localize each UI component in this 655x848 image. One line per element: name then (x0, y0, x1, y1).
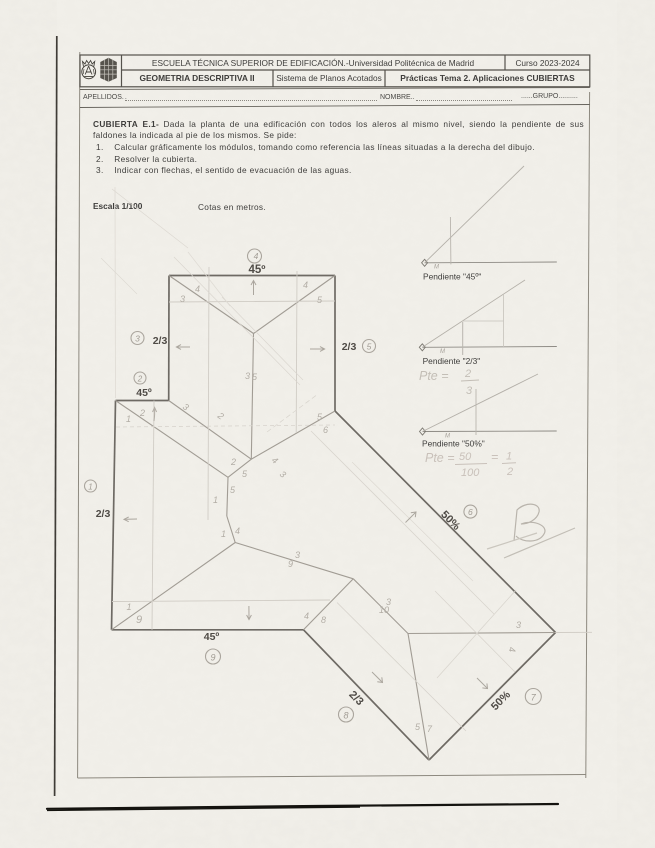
svg-text:3: 3 (295, 550, 300, 560)
svg-text:2/3: 2/3 (153, 335, 168, 347)
svg-text:7: 7 (427, 724, 433, 734)
svg-text:1: 1 (221, 529, 226, 539)
svg-text:2: 2 (230, 457, 236, 467)
svg-text:=: = (491, 450, 498, 464)
svg-text:3: 3 (516, 620, 521, 630)
svg-text:5: 5 (230, 485, 236, 495)
svg-text:6: 6 (323, 425, 328, 435)
svg-text:1: 1 (213, 495, 218, 505)
svg-text:2/3: 2/3 (342, 341, 357, 353)
svg-text:5: 5 (242, 469, 248, 479)
svg-text:4: 4 (507, 647, 517, 652)
svg-text:M: M (440, 349, 445, 355)
svg-text:3: 3 (135, 334, 140, 344)
svg-text:5: 5 (317, 295, 323, 305)
svg-text:Pte =: Pte = (419, 369, 449, 383)
svg-text:4: 4 (270, 455, 280, 466)
svg-text:4: 4 (254, 251, 259, 261)
svg-text:5: 5 (415, 722, 421, 732)
svg-text:4: 4 (195, 284, 200, 294)
svg-text:Pendiente "45º": Pendiente "45º" (423, 272, 481, 282)
svg-text:1: 1 (506, 451, 512, 463)
svg-text:50: 50 (459, 451, 472, 463)
svg-text:4: 4 (235, 526, 240, 536)
svg-text:8: 8 (343, 711, 348, 721)
svg-text:9: 9 (210, 653, 215, 663)
svg-text:45º: 45º (249, 264, 266, 276)
svg-text:5: 5 (367, 342, 372, 352)
svg-text:2/3: 2/3 (96, 508, 111, 520)
svg-text:5: 5 (252, 372, 258, 382)
svg-text:M: M (434, 265, 439, 271)
svg-text:9: 9 (136, 614, 142, 626)
svg-text:2: 2 (464, 368, 471, 380)
svg-text:45º: 45º (204, 631, 220, 643)
svg-text:2: 2 (137, 375, 143, 384)
svg-text:3: 3 (245, 371, 250, 381)
svg-text:2: 2 (506, 466, 513, 478)
svg-text:4: 4 (304, 611, 309, 621)
svg-text:Pendiente "50%": Pendiente "50%" (422, 439, 485, 449)
svg-text:45º: 45º (136, 387, 152, 399)
svg-text:2: 2 (139, 408, 145, 418)
svg-text:6: 6 (468, 507, 473, 517)
svg-text:4: 4 (303, 280, 308, 290)
svg-text:Pte =: Pte = (425, 451, 455, 465)
svg-text:Pendiente "2/3": Pendiente "2/3" (423, 356, 481, 366)
svg-text:3: 3 (180, 294, 185, 304)
svg-text:5: 5 (317, 412, 323, 422)
svg-text:10: 10 (379, 605, 389, 615)
svg-text:50%: 50% (438, 509, 462, 533)
svg-text:1: 1 (88, 483, 92, 492)
svg-text:8: 8 (321, 615, 326, 625)
svg-text:7: 7 (531, 693, 537, 703)
svg-text:3: 3 (278, 469, 288, 480)
svg-text:50%: 50% (489, 689, 513, 713)
svg-text:9: 9 (288, 559, 293, 569)
svg-text:1: 1 (126, 414, 131, 424)
svg-text:1: 1 (127, 602, 132, 612)
svg-text:2: 2 (215, 410, 226, 422)
svg-text:3: 3 (466, 385, 473, 397)
svg-text:100: 100 (461, 467, 480, 479)
